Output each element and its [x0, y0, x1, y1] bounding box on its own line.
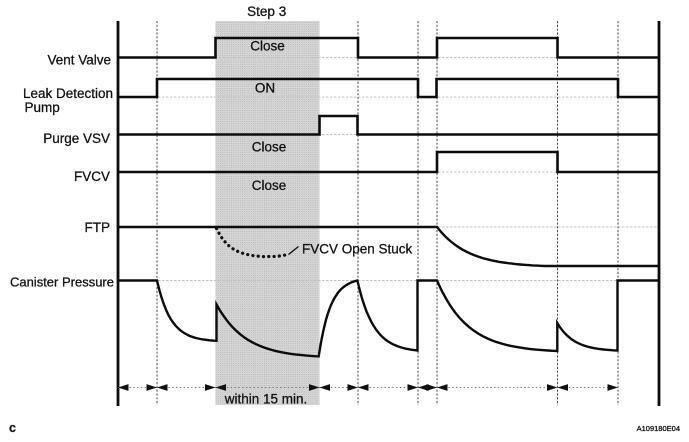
svg-text:FVCV Open Stuck: FVCV Open Stuck — [302, 242, 413, 257]
svg-text:Vent Valve: Vent Valve — [47, 53, 111, 68]
svg-text:Leak Detection: Leak Detection — [23, 86, 113, 101]
svg-text:within 15 min.: within 15 min. — [224, 392, 308, 407]
svg-text:Canister Pressure: Canister Pressure — [10, 275, 114, 290]
svg-text:ON: ON — [255, 81, 275, 96]
svg-text:Pump: Pump — [25, 100, 60, 115]
svg-text:FVCV: FVCV — [74, 169, 110, 184]
svg-text:Close: Close — [250, 39, 285, 54]
svg-text:Close: Close — [252, 178, 287, 193]
svg-text:Step 3: Step 3 — [247, 4, 286, 19]
svg-text:A109180E04: A109180E04 — [637, 424, 680, 433]
svg-text:Close: Close — [252, 140, 287, 155]
svg-text:Purge VSV: Purge VSV — [43, 131, 110, 146]
svg-text:FTP: FTP — [85, 220, 111, 235]
svg-text:c: c — [9, 421, 16, 435]
